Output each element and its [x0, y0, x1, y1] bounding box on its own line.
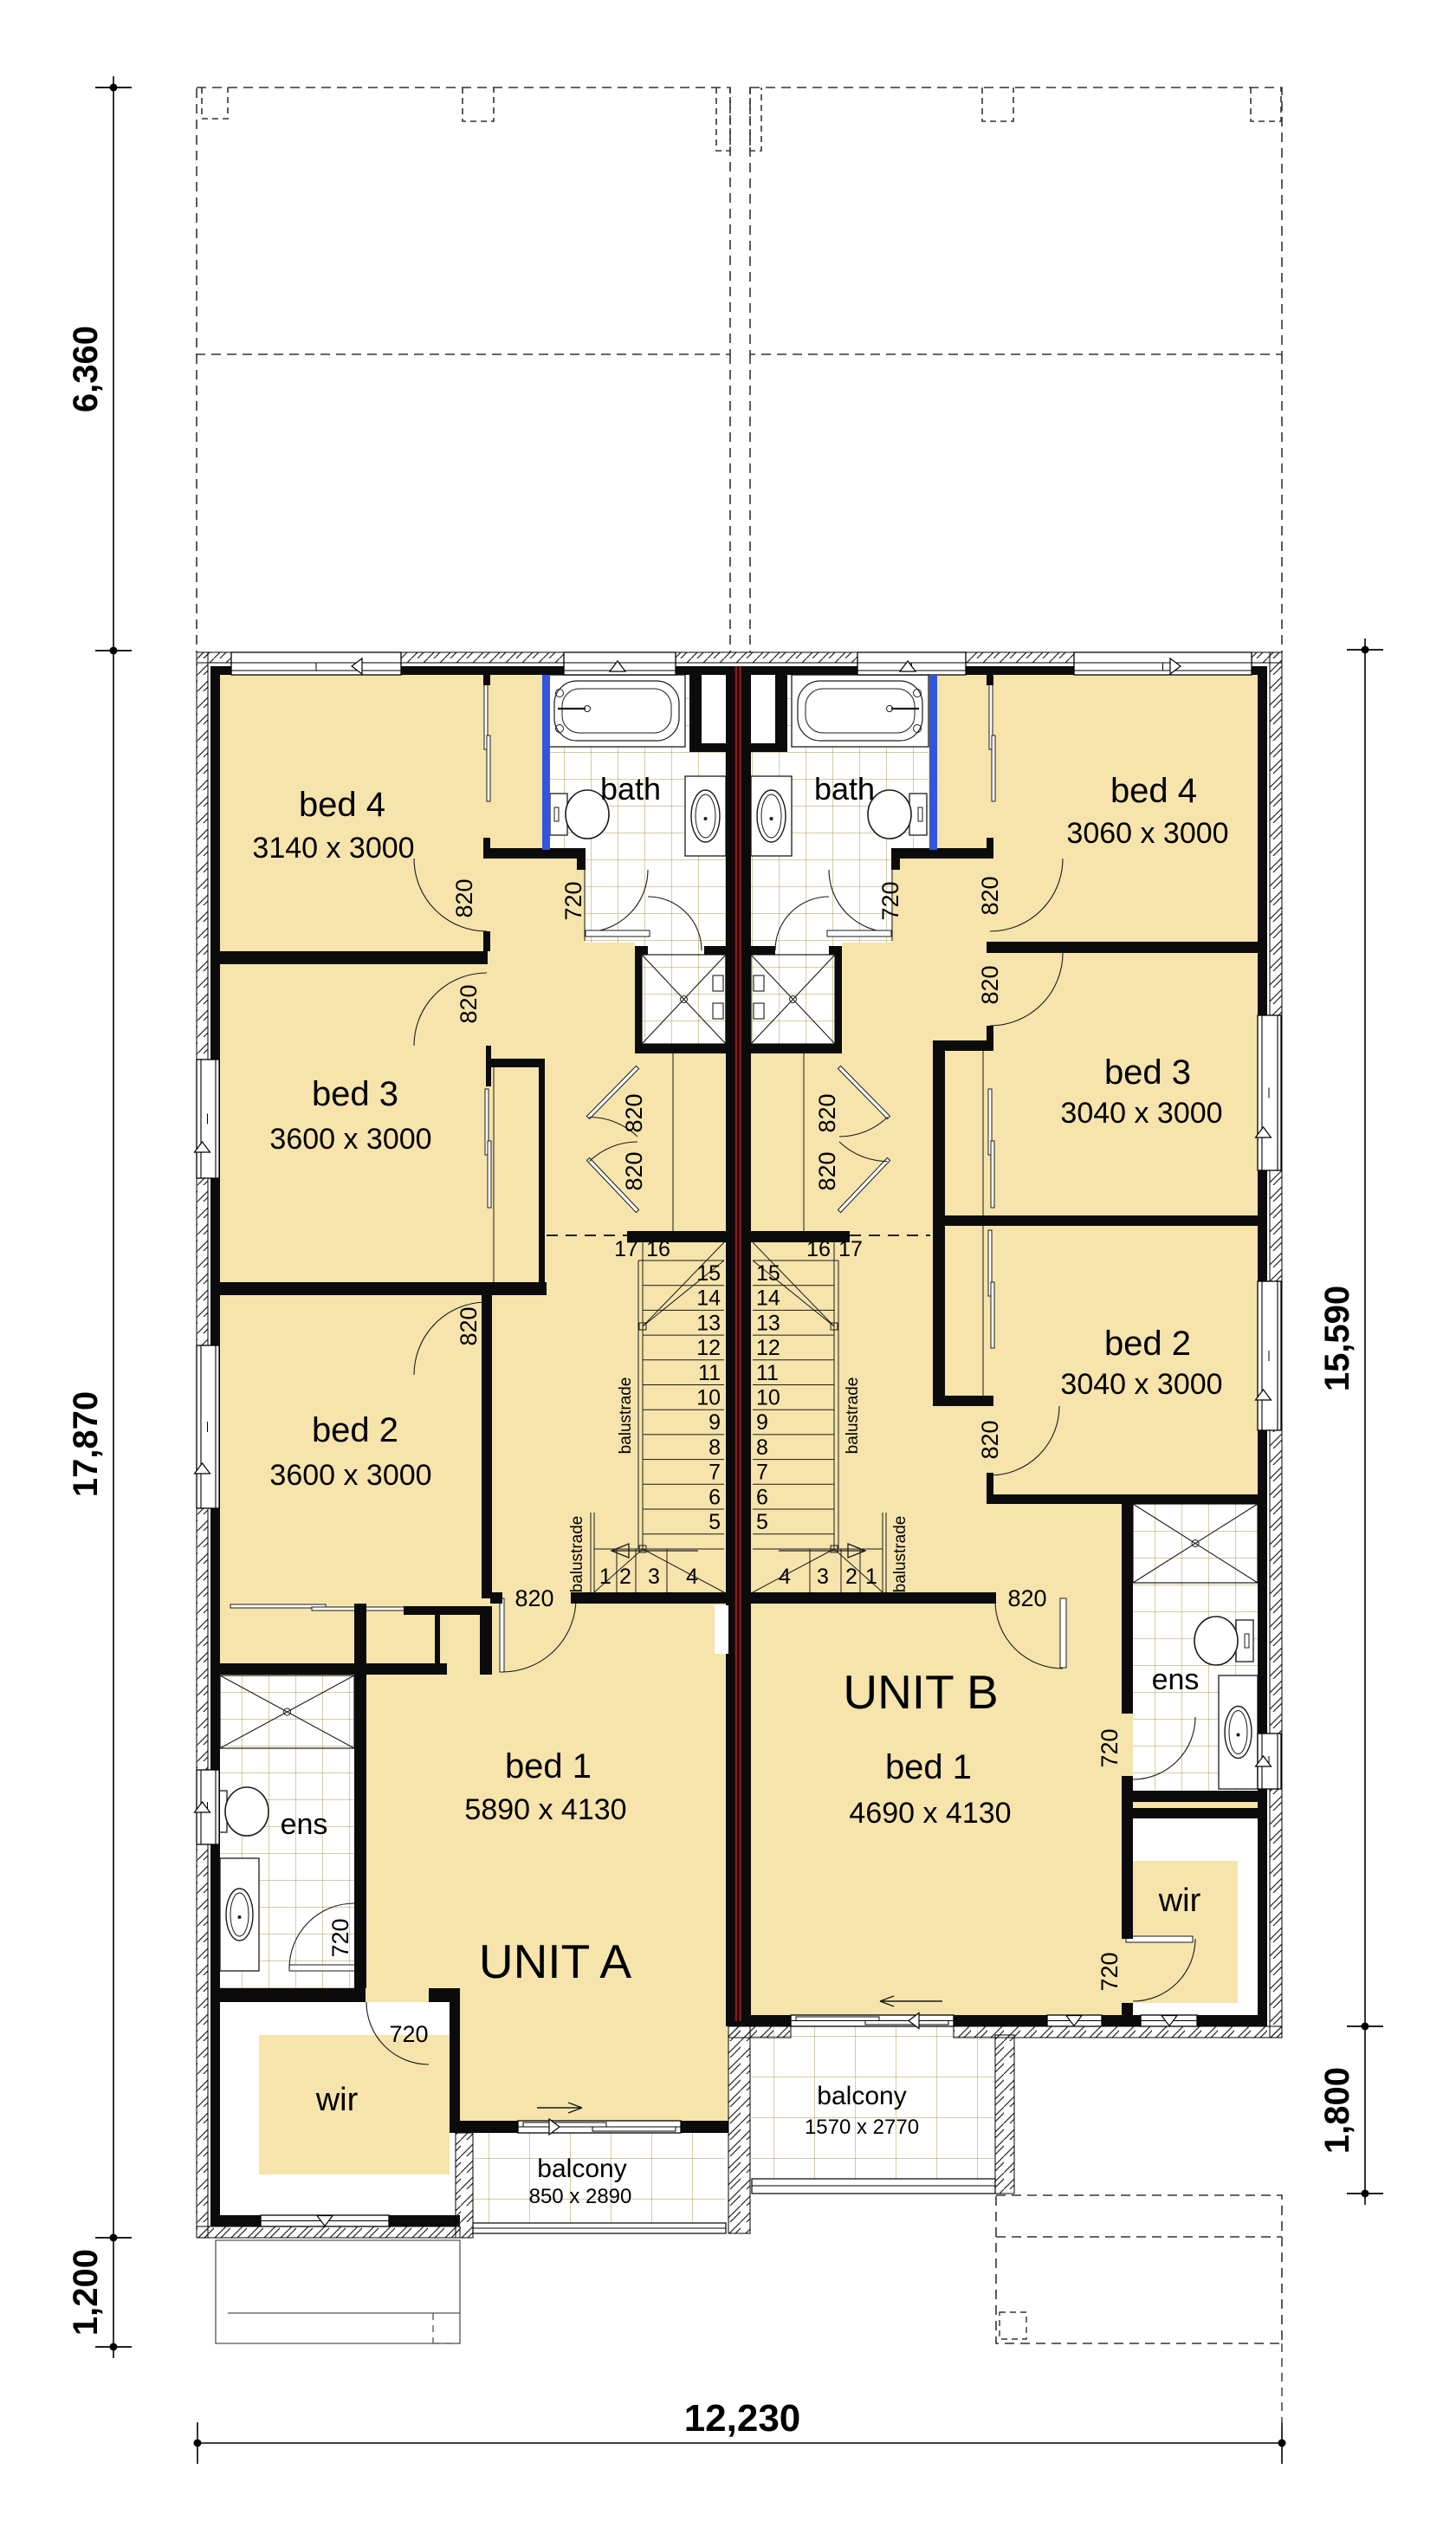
svg-text:720: 720: [389, 2021, 428, 2047]
svg-text:820: 820: [514, 1585, 553, 1611]
svg-text:10: 10: [756, 1386, 780, 1410]
svg-text:4: 4: [686, 1565, 698, 1589]
svg-text:balustrade: balustrade: [617, 1377, 635, 1455]
svg-text:15,590: 15,590: [1318, 1286, 1356, 1391]
svg-text:3140 x 3000: 3140 x 3000: [252, 832, 414, 865]
svg-text:820: 820: [621, 1093, 647, 1132]
svg-text:12,230: 12,230: [684, 2397, 801, 2440]
svg-text:720: 720: [877, 881, 903, 920]
svg-text:bed 3: bed 3: [312, 1075, 398, 1113]
svg-text:bed 2: bed 2: [1104, 1325, 1191, 1363]
svg-text:9: 9: [756, 1410, 768, 1435]
svg-text:14: 14: [696, 1286, 721, 1311]
svg-text:balustrade: balustrade: [844, 1377, 862, 1455]
svg-text:balustrade: balustrade: [568, 1516, 586, 1593]
svg-text:820: 820: [451, 878, 477, 917]
svg-text:11: 11: [756, 1361, 779, 1385]
svg-text:1570 x 2770: 1570 x 2770: [805, 2116, 919, 2139]
svg-text:820: 820: [977, 965, 1003, 1004]
svg-text:ens: ens: [1152, 1663, 1200, 1696]
svg-text:5: 5: [709, 1510, 721, 1534]
svg-text:1,800: 1,800: [1318, 2067, 1356, 2154]
svg-text:bath: bath: [814, 771, 875, 807]
svg-text:720: 720: [1097, 1728, 1123, 1767]
svg-text:5: 5: [756, 1510, 768, 1534]
svg-text:4690 x 4130: 4690 x 4130: [849, 1797, 1011, 1830]
svg-text:1: 1: [865, 1565, 877, 1589]
svg-text:8: 8: [756, 1436, 768, 1460]
svg-text:7: 7: [709, 1461, 721, 1485]
svg-text:3: 3: [817, 1565, 829, 1589]
svg-text:3: 3: [648, 1565, 660, 1589]
svg-text:820: 820: [977, 1420, 1003, 1459]
svg-text:5890 x 4130: 5890 x 4130: [464, 1793, 626, 1826]
svg-text:balcony: balcony: [817, 2082, 906, 2110]
svg-text:820: 820: [977, 876, 1003, 915]
svg-text:6,360: 6,360: [67, 326, 105, 412]
svg-text:3600 x 3000: 3600 x 3000: [269, 1459, 431, 1492]
svg-text:12: 12: [696, 1336, 721, 1360]
svg-text:3040 x 3000: 3040 x 3000: [1060, 1368, 1222, 1401]
svg-text:11: 11: [698, 1361, 721, 1385]
svg-text:ens: ens: [281, 1808, 328, 1841]
svg-text:1: 1: [599, 1565, 612, 1589]
svg-text:820: 820: [814, 1151, 840, 1190]
svg-text:15: 15: [756, 1261, 780, 1286]
svg-text:15: 15: [696, 1261, 721, 1286]
svg-text:17,870: 17,870: [67, 1391, 105, 1497]
svg-text:720: 720: [1097, 1952, 1123, 1991]
svg-text:10: 10: [696, 1386, 721, 1410]
svg-text:8: 8: [709, 1436, 721, 1460]
svg-text:14: 14: [756, 1286, 780, 1311]
svg-text:820: 820: [456, 984, 482, 1023]
svg-text:wir: wir: [1158, 1883, 1201, 1919]
svg-text:balcony: balcony: [537, 2155, 626, 2183]
svg-text:balustrade: balustrade: [891, 1516, 909, 1593]
svg-text:UNIT B: UNIT B: [843, 1665, 998, 1719]
svg-text:1,200: 1,200: [67, 2249, 105, 2336]
svg-text:3060 x 3000: 3060 x 3000: [1066, 817, 1228, 850]
svg-text:4: 4: [779, 1565, 791, 1589]
svg-text:820: 820: [814, 1093, 840, 1132]
svg-text:9: 9: [709, 1410, 721, 1435]
svg-text:13: 13: [756, 1311, 780, 1335]
svg-text:bed 3: bed 3: [1104, 1053, 1191, 1092]
svg-text:6: 6: [756, 1485, 768, 1509]
svg-text:6: 6: [709, 1485, 721, 1509]
svg-text:3040 x 3000: 3040 x 3000: [1060, 1097, 1222, 1130]
svg-text:720: 720: [560, 881, 586, 920]
svg-text:bed 2: bed 2: [312, 1411, 398, 1449]
svg-text:820: 820: [456, 1306, 482, 1345]
svg-text:2: 2: [619, 1565, 631, 1589]
svg-text:7: 7: [756, 1461, 768, 1485]
svg-text:bed 1: bed 1: [885, 1748, 972, 1786]
svg-text:12: 12: [756, 1336, 780, 1360]
svg-text:850 x 2890: 850 x 2890: [529, 2185, 632, 2208]
svg-text:13: 13: [696, 1311, 721, 1335]
svg-text:bed 1: bed 1: [505, 1747, 592, 1785]
svg-text:UNIT A: UNIT A: [479, 1935, 632, 1988]
svg-text:bath: bath: [600, 771, 661, 807]
svg-text:820: 820: [621, 1151, 647, 1190]
svg-text:2: 2: [845, 1565, 857, 1589]
svg-text:bed 4: bed 4: [1110, 772, 1197, 810]
svg-text:wir: wir: [315, 2082, 359, 2118]
svg-text:bed 4: bed 4: [299, 786, 385, 824]
svg-text:820: 820: [1007, 1585, 1046, 1611]
svg-text:720: 720: [327, 1918, 353, 1957]
svg-text:3600 x 3000: 3600 x 3000: [269, 1123, 431, 1156]
